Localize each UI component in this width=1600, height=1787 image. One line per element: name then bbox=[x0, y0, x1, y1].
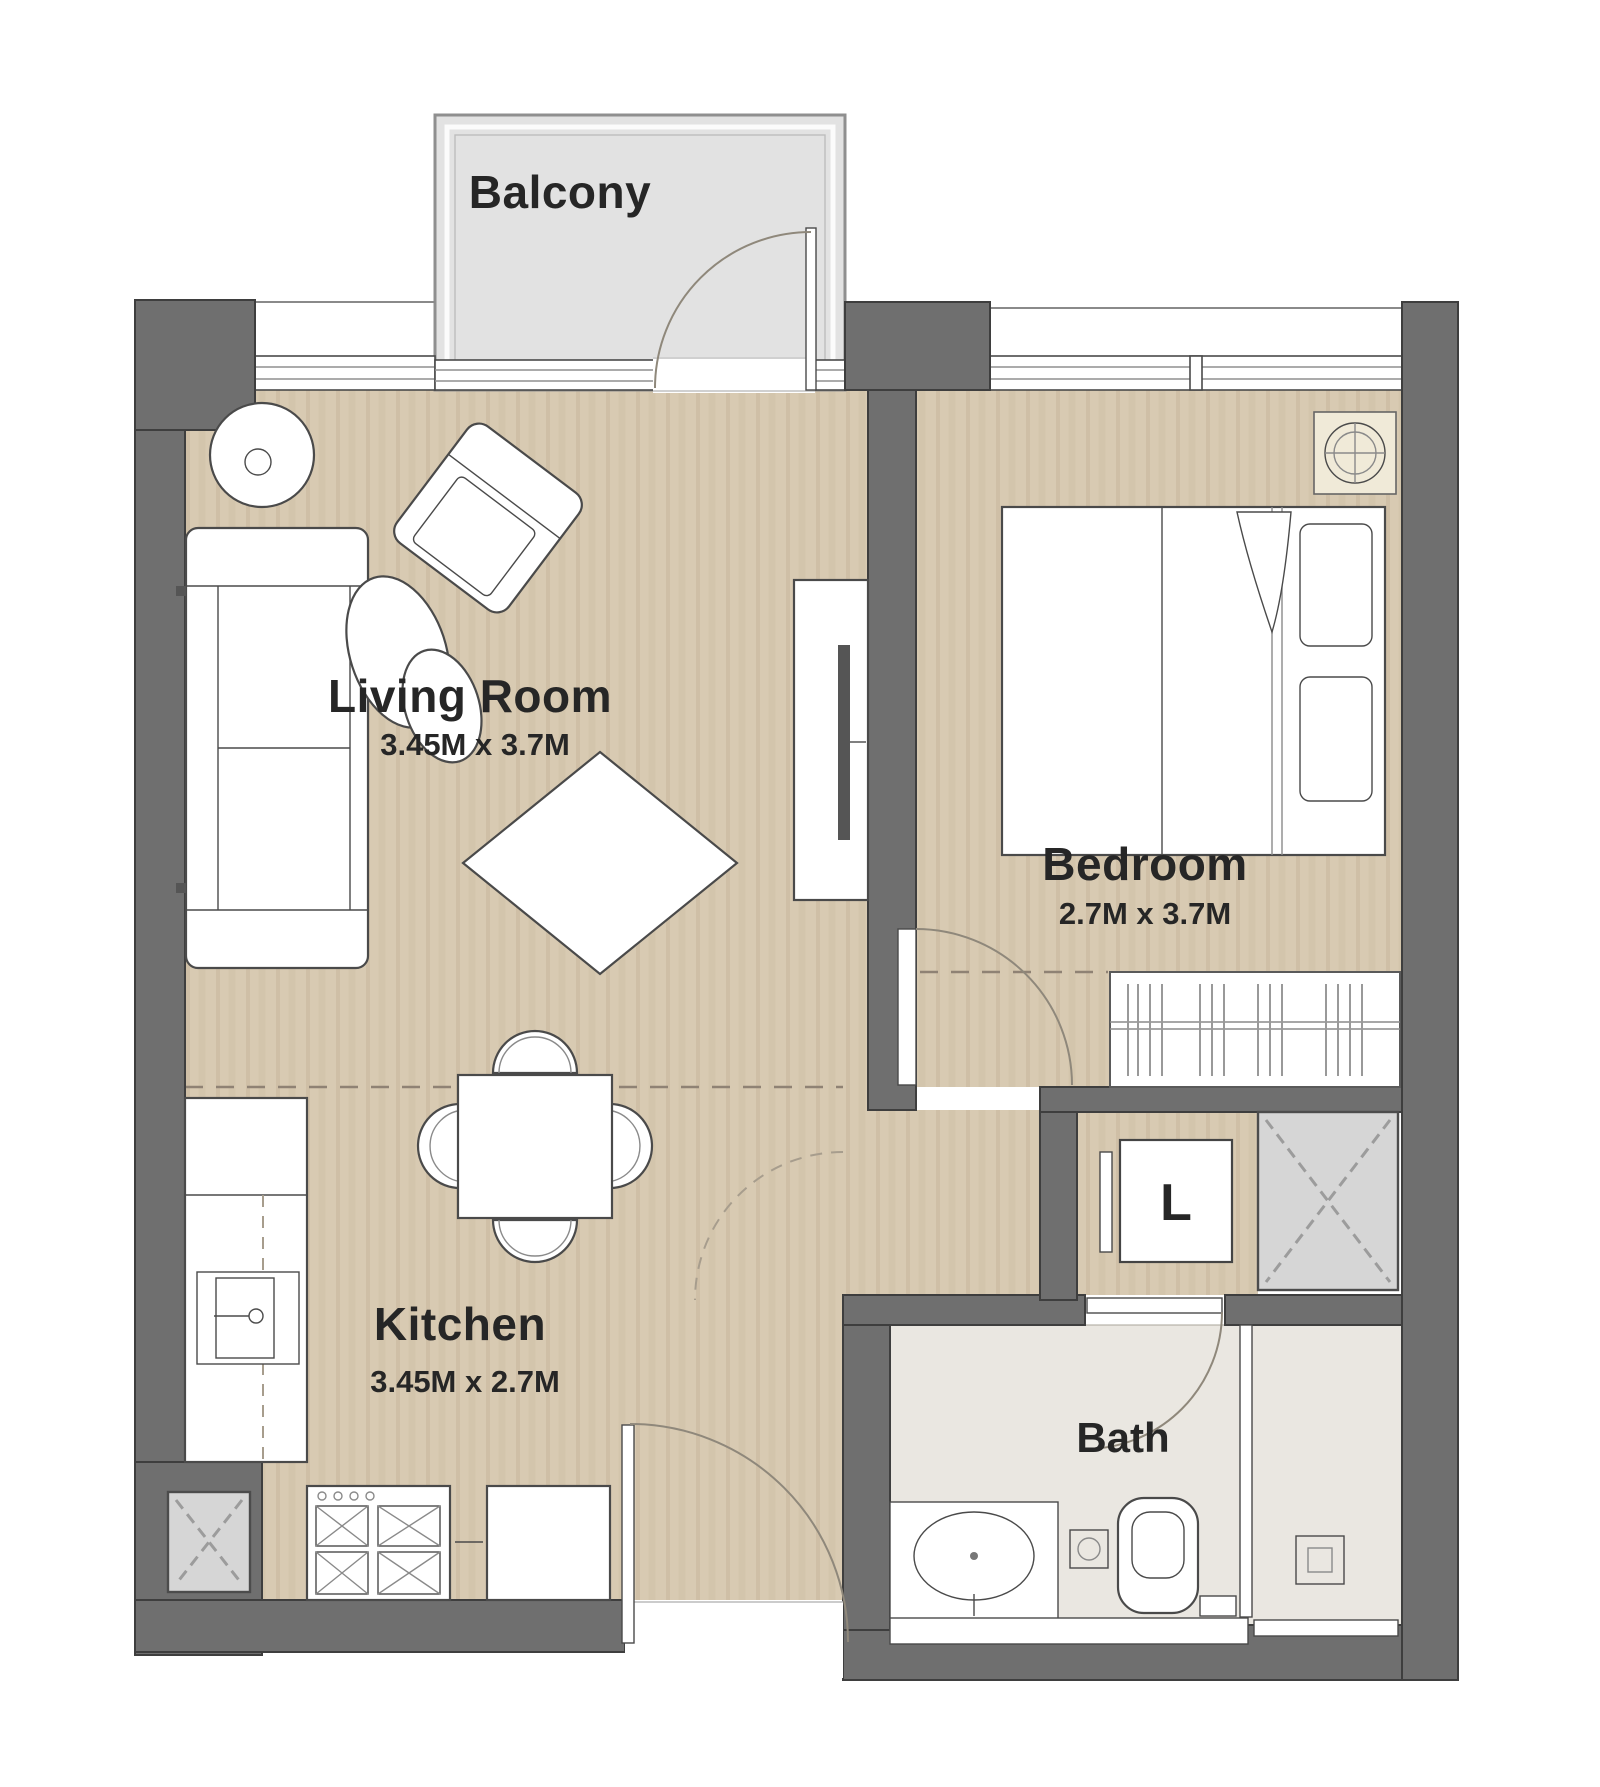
ac-ceiling-fan bbox=[1314, 412, 1396, 494]
wardrobe bbox=[1110, 972, 1400, 1087]
bath-counter-strip bbox=[890, 1618, 1248, 1644]
toilet bbox=[1118, 1498, 1198, 1613]
wall-bottom-kitchen bbox=[135, 1600, 625, 1652]
sofa-foot bbox=[176, 883, 186, 893]
entry-door-leaf bbox=[622, 1425, 634, 1643]
window-mullion bbox=[1190, 356, 1202, 390]
wall-bath-top-right bbox=[1225, 1295, 1402, 1325]
counter-appliance bbox=[487, 1486, 610, 1600]
pillow bbox=[1300, 677, 1372, 801]
bedroom-window bbox=[990, 356, 1402, 390]
shaft-duct-large bbox=[1258, 1112, 1398, 1290]
pillow bbox=[1300, 524, 1372, 646]
drain-dot bbox=[970, 1552, 978, 1560]
bedroom-dims: 2.7M x 3.7M bbox=[1059, 896, 1231, 931]
wall-right bbox=[1402, 302, 1458, 1680]
wall-left bbox=[135, 300, 185, 1655]
wall-laundry-left bbox=[1040, 1112, 1077, 1300]
tv-console bbox=[794, 580, 868, 900]
wall-bath-left bbox=[843, 1300, 890, 1630]
side-table bbox=[210, 403, 314, 507]
bath-label: Bath bbox=[1076, 1414, 1169, 1461]
tv-screen bbox=[838, 645, 850, 840]
bedroom-door-leaf bbox=[898, 929, 916, 1085]
balcony bbox=[435, 115, 845, 390]
balcony-label: Balcony bbox=[469, 166, 651, 218]
balcony-door-leaf bbox=[806, 228, 816, 390]
tissue-box bbox=[1200, 1596, 1236, 1616]
kitchen-dims: 3.45M x 2.7M bbox=[370, 1364, 560, 1399]
shaft-duct-small bbox=[168, 1492, 250, 1592]
living-room-window bbox=[255, 356, 435, 390]
wall-top-middle-column bbox=[845, 302, 990, 390]
vanity-sink bbox=[890, 1502, 1058, 1620]
kitchen-sink bbox=[197, 1272, 299, 1364]
bedroom-label: Bedroom bbox=[1042, 838, 1247, 890]
laundry-door-leaf bbox=[1100, 1152, 1112, 1252]
living-room-dims: 3.45M x 3.7M bbox=[380, 727, 570, 762]
entry-threshold bbox=[625, 1602, 843, 1678]
wood-grain-overlay bbox=[868, 1110, 1040, 1300]
sofa-foot bbox=[176, 586, 186, 596]
dining-table bbox=[458, 1075, 612, 1218]
living-room-label: Living Room bbox=[328, 670, 612, 722]
laundry-label: L bbox=[1160, 1174, 1192, 1232]
laundry-closet: L bbox=[1100, 1140, 1232, 1262]
balcony-door-opening bbox=[653, 357, 815, 393]
kitchen-label: Kitchen bbox=[374, 1298, 546, 1350]
sofa bbox=[176, 528, 368, 968]
double-bed bbox=[1002, 507, 1385, 855]
floor-plan-drawing: L Balcony Living Room 3.45M x 3.7M bbox=[0, 0, 1600, 1787]
wall-under-wardrobe bbox=[1040, 1087, 1402, 1112]
shower-glass-partition bbox=[1240, 1325, 1252, 1617]
bath-door-leaf bbox=[1087, 1298, 1222, 1313]
balcony-slab bbox=[435, 115, 845, 390]
floor-plan-page: L Balcony Living Room 3.45M x 3.7M bbox=[0, 0, 1600, 1787]
kitchen-left-counter bbox=[185, 1098, 307, 1462]
shower-threshold bbox=[1254, 1620, 1398, 1636]
